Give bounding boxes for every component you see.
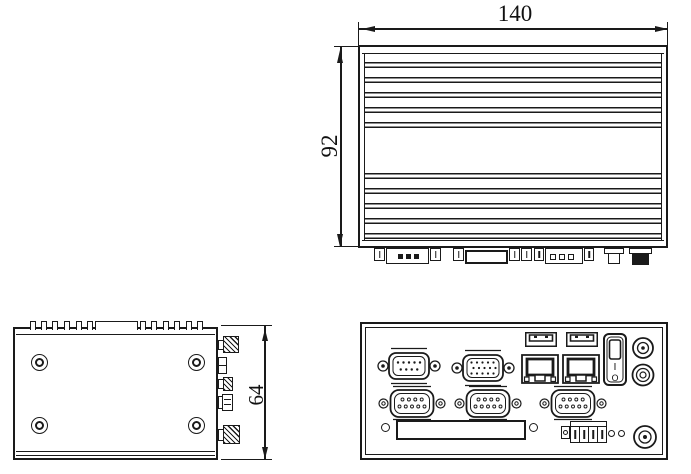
top-edge-connector	[584, 248, 594, 261]
dim-width-line	[358, 28, 668, 30]
fin-plateau	[95, 321, 138, 330]
top-view-chassis	[358, 45, 668, 248]
ethernet-port-2	[562, 354, 600, 384]
fin-bump	[41, 321, 47, 330]
fin-edge-line	[362, 53, 664, 54]
fin-edge-line-bottom	[362, 240, 664, 241]
cooling-fins-upper	[364, 62, 662, 130]
top-edge-connector	[374, 248, 385, 261]
connector-profile-nut	[223, 377, 233, 391]
vga-footprint	[465, 250, 508, 264]
jack-screw	[379, 399, 388, 408]
jack-screw	[455, 399, 464, 408]
serial-port-3	[538, 385, 608, 421]
antenna-connector-top	[631, 336, 655, 360]
power-switch: I O	[603, 333, 627, 386]
antenna-connector-profile-nut	[223, 336, 239, 353]
side-view-chassis	[13, 327, 218, 460]
dc-plug-footprint-body	[608, 253, 620, 264]
antenna-footprint-body	[632, 253, 649, 265]
usb-port-2	[566, 332, 598, 347]
switch-on-mark: I	[614, 362, 617, 373]
jack-screw	[540, 399, 549, 408]
top-edge-connector	[521, 248, 532, 261]
fin-bump	[197, 321, 203, 330]
dc-jack	[631, 363, 655, 387]
terminal-screw	[618, 430, 625, 437]
dim-arrow-right	[655, 26, 671, 32]
jack-screw	[436, 399, 445, 408]
fin-bump	[174, 321, 180, 330]
top-edge-connector	[430, 248, 441, 261]
dim-arrow-down	[337, 234, 343, 250]
terminal-cell	[597, 426, 607, 443]
side-wall-left	[364, 53, 365, 240]
mount-hole-inner	[192, 358, 201, 367]
dim-arrow-left	[359, 26, 375, 32]
side-wall-right	[661, 53, 662, 240]
usb-port-1	[525, 332, 557, 347]
fin-bump	[140, 321, 146, 330]
fin-bump	[151, 321, 157, 330]
dim-width-label: 140	[480, 1, 550, 27]
dim-arrow-up	[337, 47, 343, 63]
fin-bump	[30, 321, 36, 330]
fin-bump	[87, 321, 93, 330]
db-footprint	[545, 248, 583, 264]
top-edge-connector	[453, 248, 464, 261]
dim-arrow-down	[262, 447, 268, 462]
fin-bump	[52, 321, 58, 330]
terminal-screw	[608, 430, 615, 437]
antenna-connector-bottom	[632, 424, 658, 450]
fin-bump	[76, 321, 82, 330]
mount-hole-inner	[35, 421, 44, 430]
terminal-ear-screw	[563, 430, 568, 435]
switch-off-mark: O	[611, 374, 618, 384]
fin-bump	[163, 321, 169, 330]
panel-screw	[381, 423, 390, 432]
dim-height-line	[264, 326, 266, 460]
side-bottom-line-2	[16, 455, 215, 456]
mount-hole-inner	[35, 358, 44, 367]
serial-port-2	[453, 385, 523, 421]
jack-screw	[597, 399, 606, 408]
barrel-connector-profile-body	[222, 394, 233, 411]
side-bottom-line-1	[16, 451, 215, 452]
db9-footprint	[386, 248, 429, 264]
mount-hole-inner	[192, 421, 201, 430]
vga-port	[450, 349, 516, 387]
dim-depth-line	[340, 47, 342, 247]
serial-port-1	[377, 385, 447, 421]
top-edge-connector	[534, 248, 544, 261]
dim-arrow-up	[262, 326, 268, 341]
db9-serial-male	[376, 347, 442, 385]
cooling-fins-lower	[364, 173, 662, 239]
panel-screw	[529, 423, 538, 432]
fin-bump	[186, 321, 192, 330]
top-edge-connector	[509, 248, 520, 261]
jack-screw	[512, 399, 521, 408]
fin-bump	[64, 321, 70, 330]
ethernet-port-1	[521, 354, 559, 384]
technical-drawing-page: 140 92	[0, 0, 691, 474]
side-top-inner-line	[16, 334, 215, 335]
stacked-port-profile	[218, 365, 227, 374]
switch-actuator	[610, 340, 621, 359]
expansion-slot	[396, 420, 526, 440]
antenna-connector-profile-nut	[223, 425, 240, 444]
